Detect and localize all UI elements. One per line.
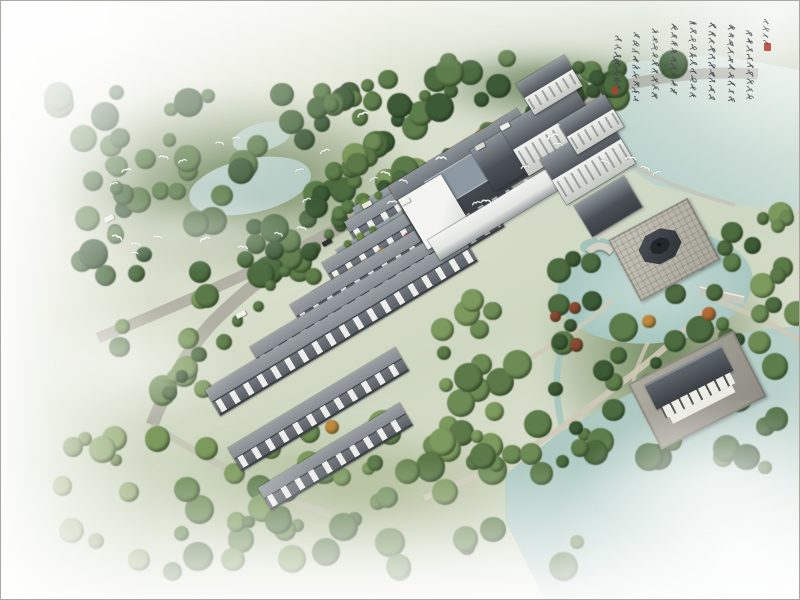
calligraphy-signature-seal <box>612 87 618 94</box>
bird <box>624 148 637 167</box>
bird <box>552 134 565 152</box>
bird <box>129 245 139 259</box>
bird <box>231 130 241 143</box>
bird <box>386 192 399 209</box>
bird <box>237 237 249 254</box>
bird <box>152 228 164 244</box>
building-complex <box>0 0 800 600</box>
bird <box>435 148 448 167</box>
calligraphy-title-seal <box>764 43 771 51</box>
bird <box>519 158 531 174</box>
aerial-rendering-canvas <box>0 0 800 600</box>
